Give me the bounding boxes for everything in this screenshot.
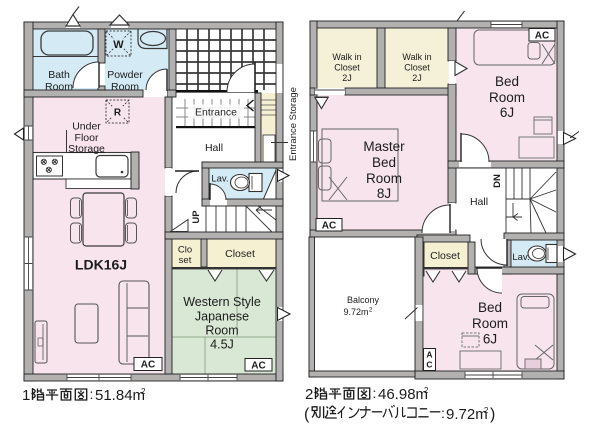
svg-text:Closet: Closet (225, 248, 255, 260)
svg-text:Bed: Bed (478, 300, 502, 315)
svg-text:2: 2 (141, 387, 146, 396)
svg-text::: : (90, 386, 94, 402)
svg-text:Lav.: Lav. (211, 174, 228, 185)
svg-text:2: 2 (424, 386, 429, 395)
svg-text:Bed: Bed (372, 155, 396, 170)
svg-text:Room: Room (205, 324, 238, 338)
svg-text:Hall: Hall (205, 142, 223, 154)
svg-text:8J: 8J (377, 186, 391, 201)
svg-text:6J: 6J (483, 332, 497, 347)
svg-text:Entrance Storage: Entrance Storage (288, 87, 299, 161)
svg-text:Room: Room (45, 81, 73, 93)
svg-text:Walk in: Walk in (332, 52, 361, 62)
svg-text:Under: Under (72, 121, 101, 133)
svg-text:AC: AC (251, 361, 265, 372)
svg-text:Closet: Closet (404, 63, 430, 73)
svg-text:AC: AC (322, 221, 336, 232)
svg-text:Japanese: Japanese (195, 310, 249, 324)
svg-text:Closet: Closet (334, 63, 360, 73)
svg-text::: : (441, 405, 445, 421)
svg-text:Hall: Hall (470, 196, 488, 208)
svg-text:Master: Master (363, 139, 405, 154)
svg-text:AC: AC (535, 31, 549, 42)
svg-text:9.72m: 9.72m (343, 307, 368, 317)
svg-text:(: ( (304, 406, 310, 423)
svg-text:Storage: Storage (68, 143, 105, 155)
svg-text:LDK16J: LDK16J (75, 257, 127, 273)
svg-text:46.98m: 46.98m (378, 386, 428, 403)
svg-text:Bath: Bath (48, 69, 70, 81)
svg-text:set: set (179, 255, 192, 266)
svg-text:Entrance: Entrance (195, 107, 237, 119)
svg-text:W: W (113, 39, 124, 51)
svg-text:Bed: Bed (495, 74, 519, 89)
svg-text:4.5J: 4.5J (210, 338, 234, 352)
svg-text:C: C (426, 360, 432, 370)
svg-text:1: 1 (22, 387, 30, 404)
svg-text:Room: Room (472, 316, 508, 331)
svg-text::: : (373, 385, 377, 401)
svg-text:2: 2 (305, 386, 313, 403)
svg-text:Lav.: Lav. (512, 252, 529, 263)
svg-text:Powder: Powder (107, 69, 143, 81)
svg-text:9.72m: 9.72m (446, 406, 488, 423)
svg-text:UP: UP (191, 210, 202, 224)
svg-text:Room: Room (489, 90, 525, 105)
svg-text:51.84m: 51.84m (95, 387, 145, 404)
svg-text:Walk in: Walk in (402, 52, 431, 62)
svg-text:Western Style: Western Style (183, 295, 261, 309)
svg-text:2J: 2J (412, 73, 422, 83)
svg-text:Room: Room (366, 171, 402, 186)
svg-text:Balcony: Balcony (347, 295, 380, 305)
svg-text:A: A (426, 350, 432, 360)
svg-text:Room: Room (111, 81, 139, 93)
svg-text:2: 2 (484, 406, 489, 415)
svg-text:R: R (114, 108, 122, 119)
svg-text:2J: 2J (342, 73, 352, 83)
svg-text:Closet: Closet (430, 250, 460, 262)
svg-text:6J: 6J (500, 105, 514, 120)
svg-text:Clo: Clo (178, 245, 192, 256)
svg-text:): ) (490, 406, 495, 423)
svg-text:DN: DN (492, 174, 503, 188)
svg-text:AC: AC (141, 360, 155, 371)
